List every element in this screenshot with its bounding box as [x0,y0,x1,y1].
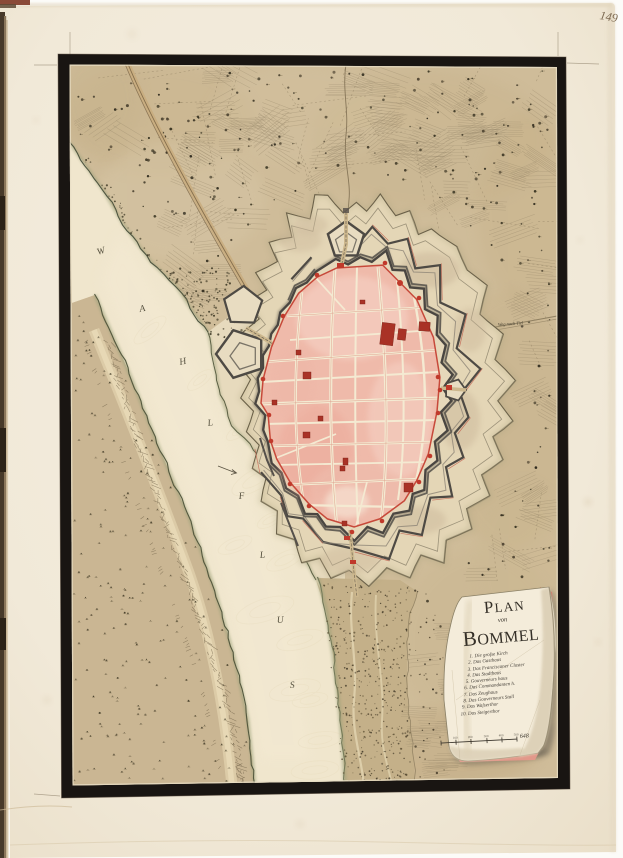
svg-text:648: 648 [520,732,529,739]
svg-text:S: S [290,681,296,691]
svg-text:400: 400 [499,733,504,737]
svg-text:200: 200 [468,735,473,739]
svg-text:F: F [237,491,245,502]
svg-text:L: L [258,551,265,562]
svg-text:500: 500 [514,732,519,736]
svg-text:300: 300 [484,734,489,738]
svg-text:100: 100 [453,736,458,740]
svg-text:von: von [498,616,508,624]
